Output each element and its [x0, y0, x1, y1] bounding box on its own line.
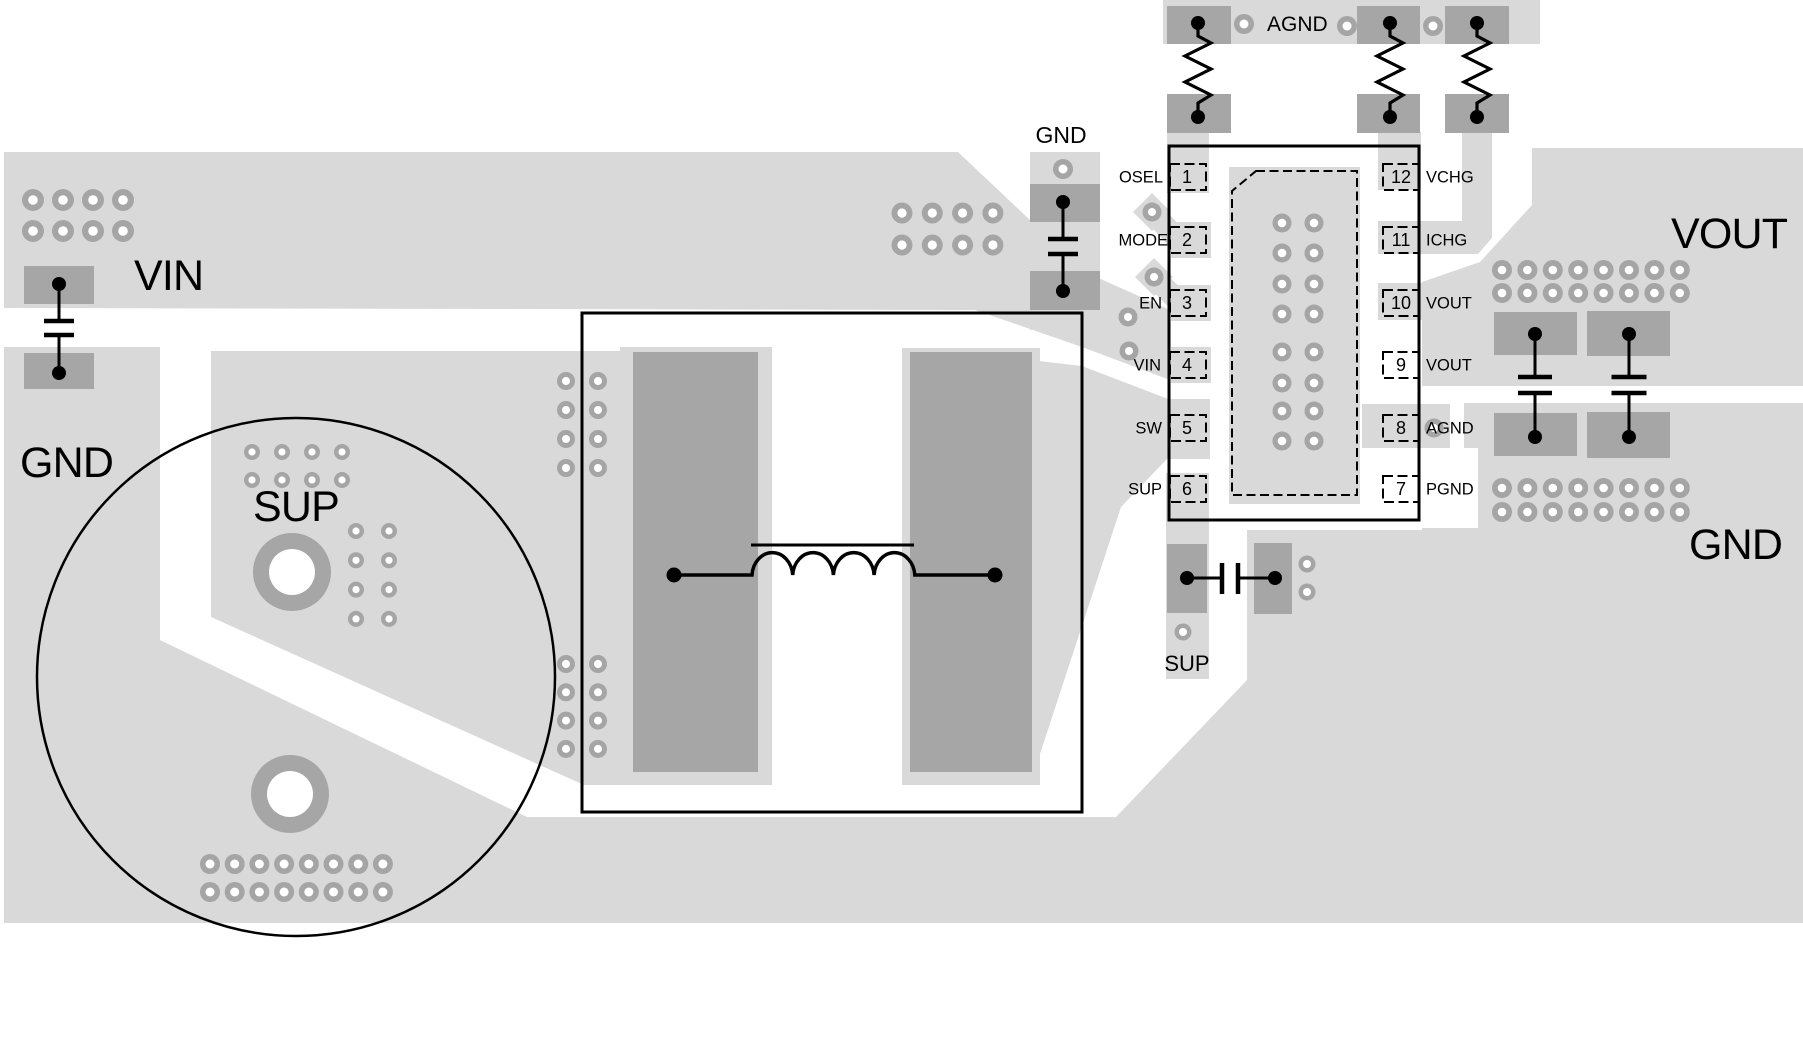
svg-text:10: 10: [1391, 293, 1411, 313]
svg-text:VIN: VIN: [134, 252, 203, 300]
svg-text:PGND: PGND: [1426, 481, 1474, 499]
svg-text:SUP: SUP: [1128, 481, 1162, 499]
svg-text:8: 8: [1396, 418, 1406, 438]
svg-text:GND: GND: [1035, 122, 1086, 148]
svg-text:VOUT: VOUT: [1426, 357, 1472, 375]
svg-text:SUP: SUP: [253, 483, 339, 531]
svg-text:AGND: AGND: [1426, 420, 1474, 438]
svg-text:MODE: MODE: [1119, 232, 1169, 250]
svg-text:VOUT: VOUT: [1671, 210, 1788, 258]
svg-text:3: 3: [1182, 293, 1192, 313]
svg-text:VIN: VIN: [1133, 357, 1161, 375]
svg-text:2: 2: [1182, 230, 1192, 250]
svg-text:EN: EN: [1139, 295, 1162, 313]
svg-text:11: 11: [1392, 230, 1411, 250]
svg-text:VCHG: VCHG: [1426, 169, 1474, 187]
svg-text:9: 9: [1396, 355, 1406, 375]
svg-text:GND: GND: [20, 439, 113, 487]
svg-text:OSEL: OSEL: [1119, 169, 1163, 187]
svg-text:SUP: SUP: [1164, 651, 1209, 676]
svg-text:7: 7: [1396, 479, 1406, 499]
svg-text:SW: SW: [1135, 420, 1162, 438]
svg-text:6: 6: [1182, 479, 1192, 499]
svg-text:1: 1: [1182, 167, 1192, 187]
svg-text:5: 5: [1182, 418, 1192, 438]
svg-text:4: 4: [1182, 355, 1192, 375]
svg-text:ICHG: ICHG: [1426, 232, 1467, 250]
svg-text:AGND: AGND: [1267, 13, 1328, 36]
svg-text:VOUT: VOUT: [1426, 295, 1472, 313]
svg-text:12: 12: [1391, 167, 1411, 187]
svg-text:GND: GND: [1689, 521, 1782, 569]
